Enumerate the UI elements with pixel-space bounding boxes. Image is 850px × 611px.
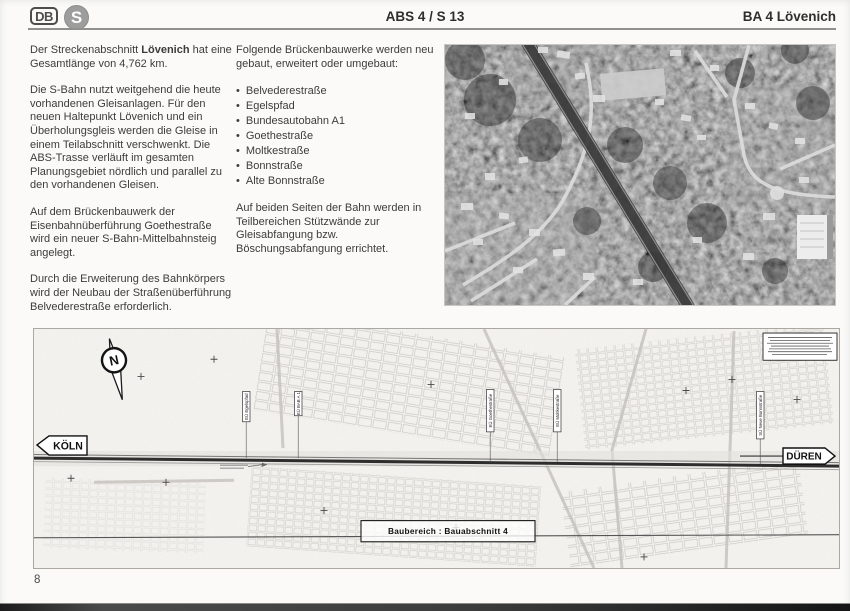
bridge-list-item: Belvederestraße <box>236 84 437 99</box>
bridge-list: Belvederestraße Egelspfad Bundesautobahn… <box>236 84 437 189</box>
bullet-icon <box>236 84 246 99</box>
office-building <box>797 215 833 259</box>
brochure-page: DB S ABS 4 / S 13 BA 4 Lövenich Der Stre… <box>0 0 850 611</box>
bridges-intro: Folgende Brückenbauwerke werden neu geba… <box>236 44 437 71</box>
header-divider <box>28 28 836 30</box>
intro-text-column: Der Streckenabschnitt Lövenich hat eine … <box>30 44 233 327</box>
bullet-icon <box>236 129 246 144</box>
legend-box <box>763 333 837 360</box>
bullet-icon <box>236 114 246 129</box>
bridge-name: Goethestraße <box>246 129 313 144</box>
paragraph-goethestrasse: Auf dem Brückenbauwerk der Eisenbahnüber… <box>30 206 233 260</box>
bridge-name: Egelspfad <box>246 99 295 114</box>
aerial-photo-image <box>445 45 835 305</box>
bridge-list-item: Bonnstraße <box>236 159 437 174</box>
sports-field <box>600 68 666 100</box>
bridge-list-item: Goethestraße <box>236 129 437 144</box>
bridge-list-item: Moltkestraße <box>236 144 437 159</box>
koeln-direction-sign: KÖLN <box>37 436 87 455</box>
bridge-label: EÜ Egelspfad <box>244 393 249 420</box>
p1-bold: Lövenich <box>141 44 189 56</box>
bullet-icon <box>236 174 246 189</box>
paragraph-belvederestrasse: Durch die Erweiterung des Bahnkörpers wi… <box>30 273 233 314</box>
bullet-icon <box>236 159 246 174</box>
bridge-name: Moltkestraße <box>246 144 310 159</box>
construction-area-label: Baubereich : Bauabschnitt 4 <box>361 521 535 542</box>
bridge-list-item: Egelspfad <box>236 99 437 114</box>
bridge-name: Bundesautobahn A1 <box>246 114 345 129</box>
bridge-name: Bonnstraße <box>246 159 303 174</box>
bridge-list-item: Alte Bonnstraße <box>236 174 437 189</box>
site-plan-map: N KÖLN DÜREN EÜ Egelspfad EÜ BAB A 1 <box>33 328 840 569</box>
koeln-sign-label: KÖLN <box>53 439 83 452</box>
bridge-name: Alte Bonnstraße <box>246 174 325 189</box>
bridge-label: EÜ BAB A 1 <box>296 392 301 416</box>
paragraph-length: Der Streckenabschnitt Lövenich hat eine … <box>30 44 233 71</box>
paragraph-sbahn: Die S-Bahn nutzt weitgehend die heute vo… <box>30 84 233 193</box>
site-plan-image: N KÖLN DÜREN EÜ Egelspfad EÜ BAB A 1 <box>34 329 839 568</box>
bridge-label: EÜ Moltkestraße <box>555 394 560 427</box>
page-number: 8 <box>34 574 40 586</box>
bridge-label: SÜ Neue Bonnstraße <box>758 394 763 436</box>
aerial-photo <box>445 45 835 305</box>
retaining-walls-paragraph: Auf beiden Seiten der Bahn werden in Tei… <box>236 202 437 256</box>
section-title: BA 4 Lövenich <box>743 9 836 24</box>
bridge-list-item: Bundesautobahn A1 <box>236 114 437 129</box>
construction-area-text: Baubereich : Bauabschnitt 4 <box>388 526 508 536</box>
bullet-icon <box>236 99 246 114</box>
scan-edge <box>0 603 850 611</box>
p1-pre: Der Streckenabschnitt <box>30 44 141 56</box>
bullet-icon <box>236 144 246 159</box>
bridge-name: Belvederestraße <box>246 84 327 99</box>
document-title: ABS 4 / S 13 <box>0 9 850 24</box>
dueren-sign-label: DÜREN <box>786 450 822 463</box>
bridge-label: EÜ Goethestraße <box>488 393 493 427</box>
bridges-text-column: Folgende Brückenbauwerke werden neu geba… <box>236 44 437 270</box>
